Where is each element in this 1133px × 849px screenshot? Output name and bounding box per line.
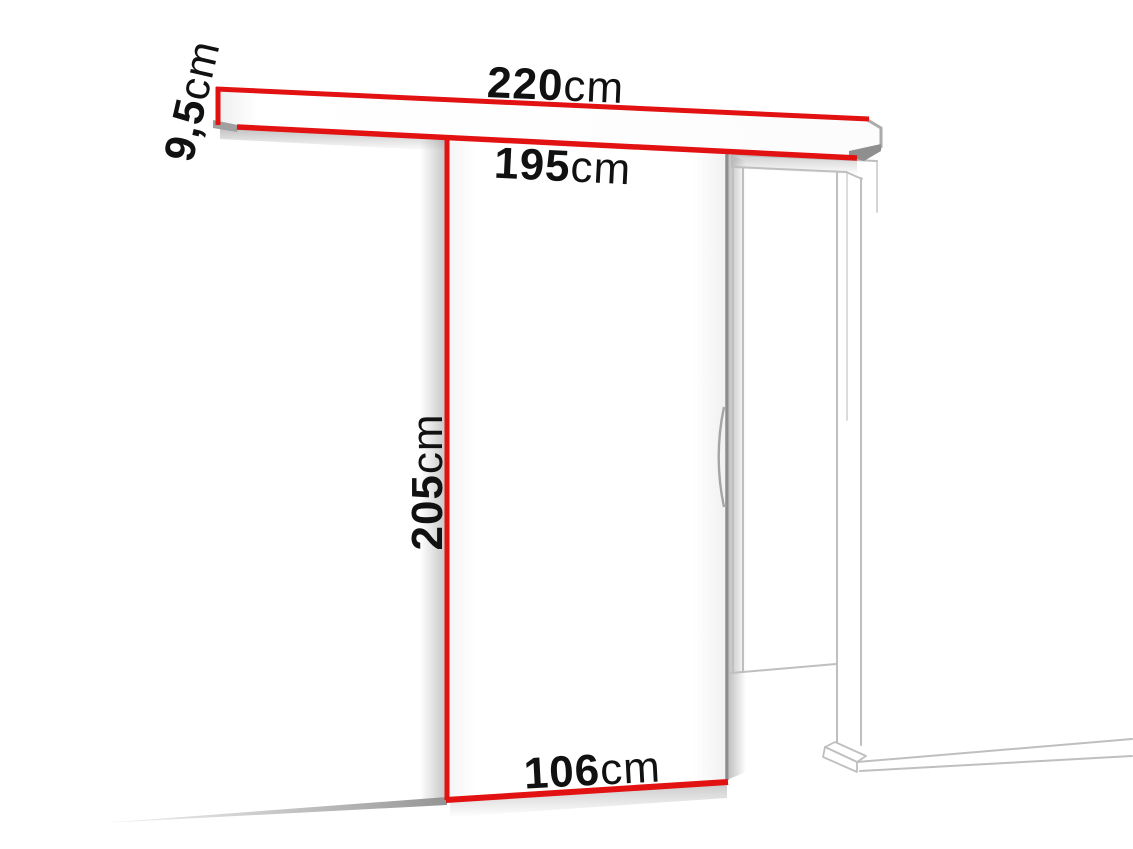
sliding-door-dimension-diagram: 220cm 195cm 9,5cm 205cm 106cm (0, 0, 1133, 849)
floor-line-left (102, 797, 447, 823)
passage-width-unit: cm (569, 142, 632, 194)
floor-line-behind-doorway (731, 664, 836, 673)
rail-length-value: 220 (486, 58, 564, 110)
rail-height-value: 9,5 (155, 94, 216, 166)
door-frame (731, 155, 877, 772)
diagram-canvas: 220cm 195cm 9,5cm 205cm 106cm (0, 0, 1133, 849)
passage-width-label: 195cm (493, 139, 632, 195)
door-panel-face (447, 137, 727, 799)
door-height-value: 205 (403, 474, 452, 550)
door-panel (446, 133, 728, 800)
door-height-label: 205cm (403, 413, 452, 550)
passage-width-value: 195 (493, 139, 572, 192)
door-width-value: 106 (523, 746, 602, 799)
door-width-label: 106cm (523, 742, 662, 798)
door-height-unit: cm (403, 413, 452, 474)
rail-length-label: 220cm (486, 58, 625, 113)
door-width-unit: cm (599, 742, 662, 794)
rail-length-unit: cm (562, 61, 625, 113)
